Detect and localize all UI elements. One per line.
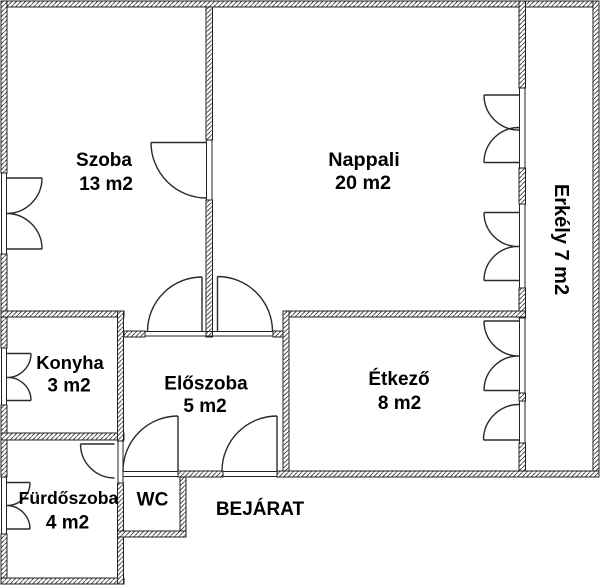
svg-text:Étkező: Étkező — [368, 368, 429, 390]
svg-text:3 m2: 3 m2 — [47, 376, 90, 397]
svg-text:WC: WC — [137, 490, 169, 511]
svg-text:13 m2: 13 m2 — [79, 174, 133, 195]
svg-text:BEJÁRAT: BEJÁRAT — [216, 498, 305, 520]
svg-text:Szoba: Szoba — [76, 150, 132, 171]
svg-text:Előszoba: Előszoba — [164, 374, 248, 395]
svg-text:5 m2: 5 m2 — [183, 396, 226, 417]
svg-text:Erkély 7 m2: Erkély 7 m2 — [550, 184, 572, 295]
svg-text:Nappali: Nappali — [328, 149, 399, 171]
svg-text:4 m2: 4 m2 — [46, 513, 89, 534]
svg-text:Konyha: Konyha — [36, 352, 104, 373]
svg-text:8 m2: 8 m2 — [378, 393, 421, 414]
svg-text:20 m2: 20 m2 — [335, 172, 391, 194]
svg-text:Fürdőszoba: Fürdőszoba — [19, 488, 119, 508]
